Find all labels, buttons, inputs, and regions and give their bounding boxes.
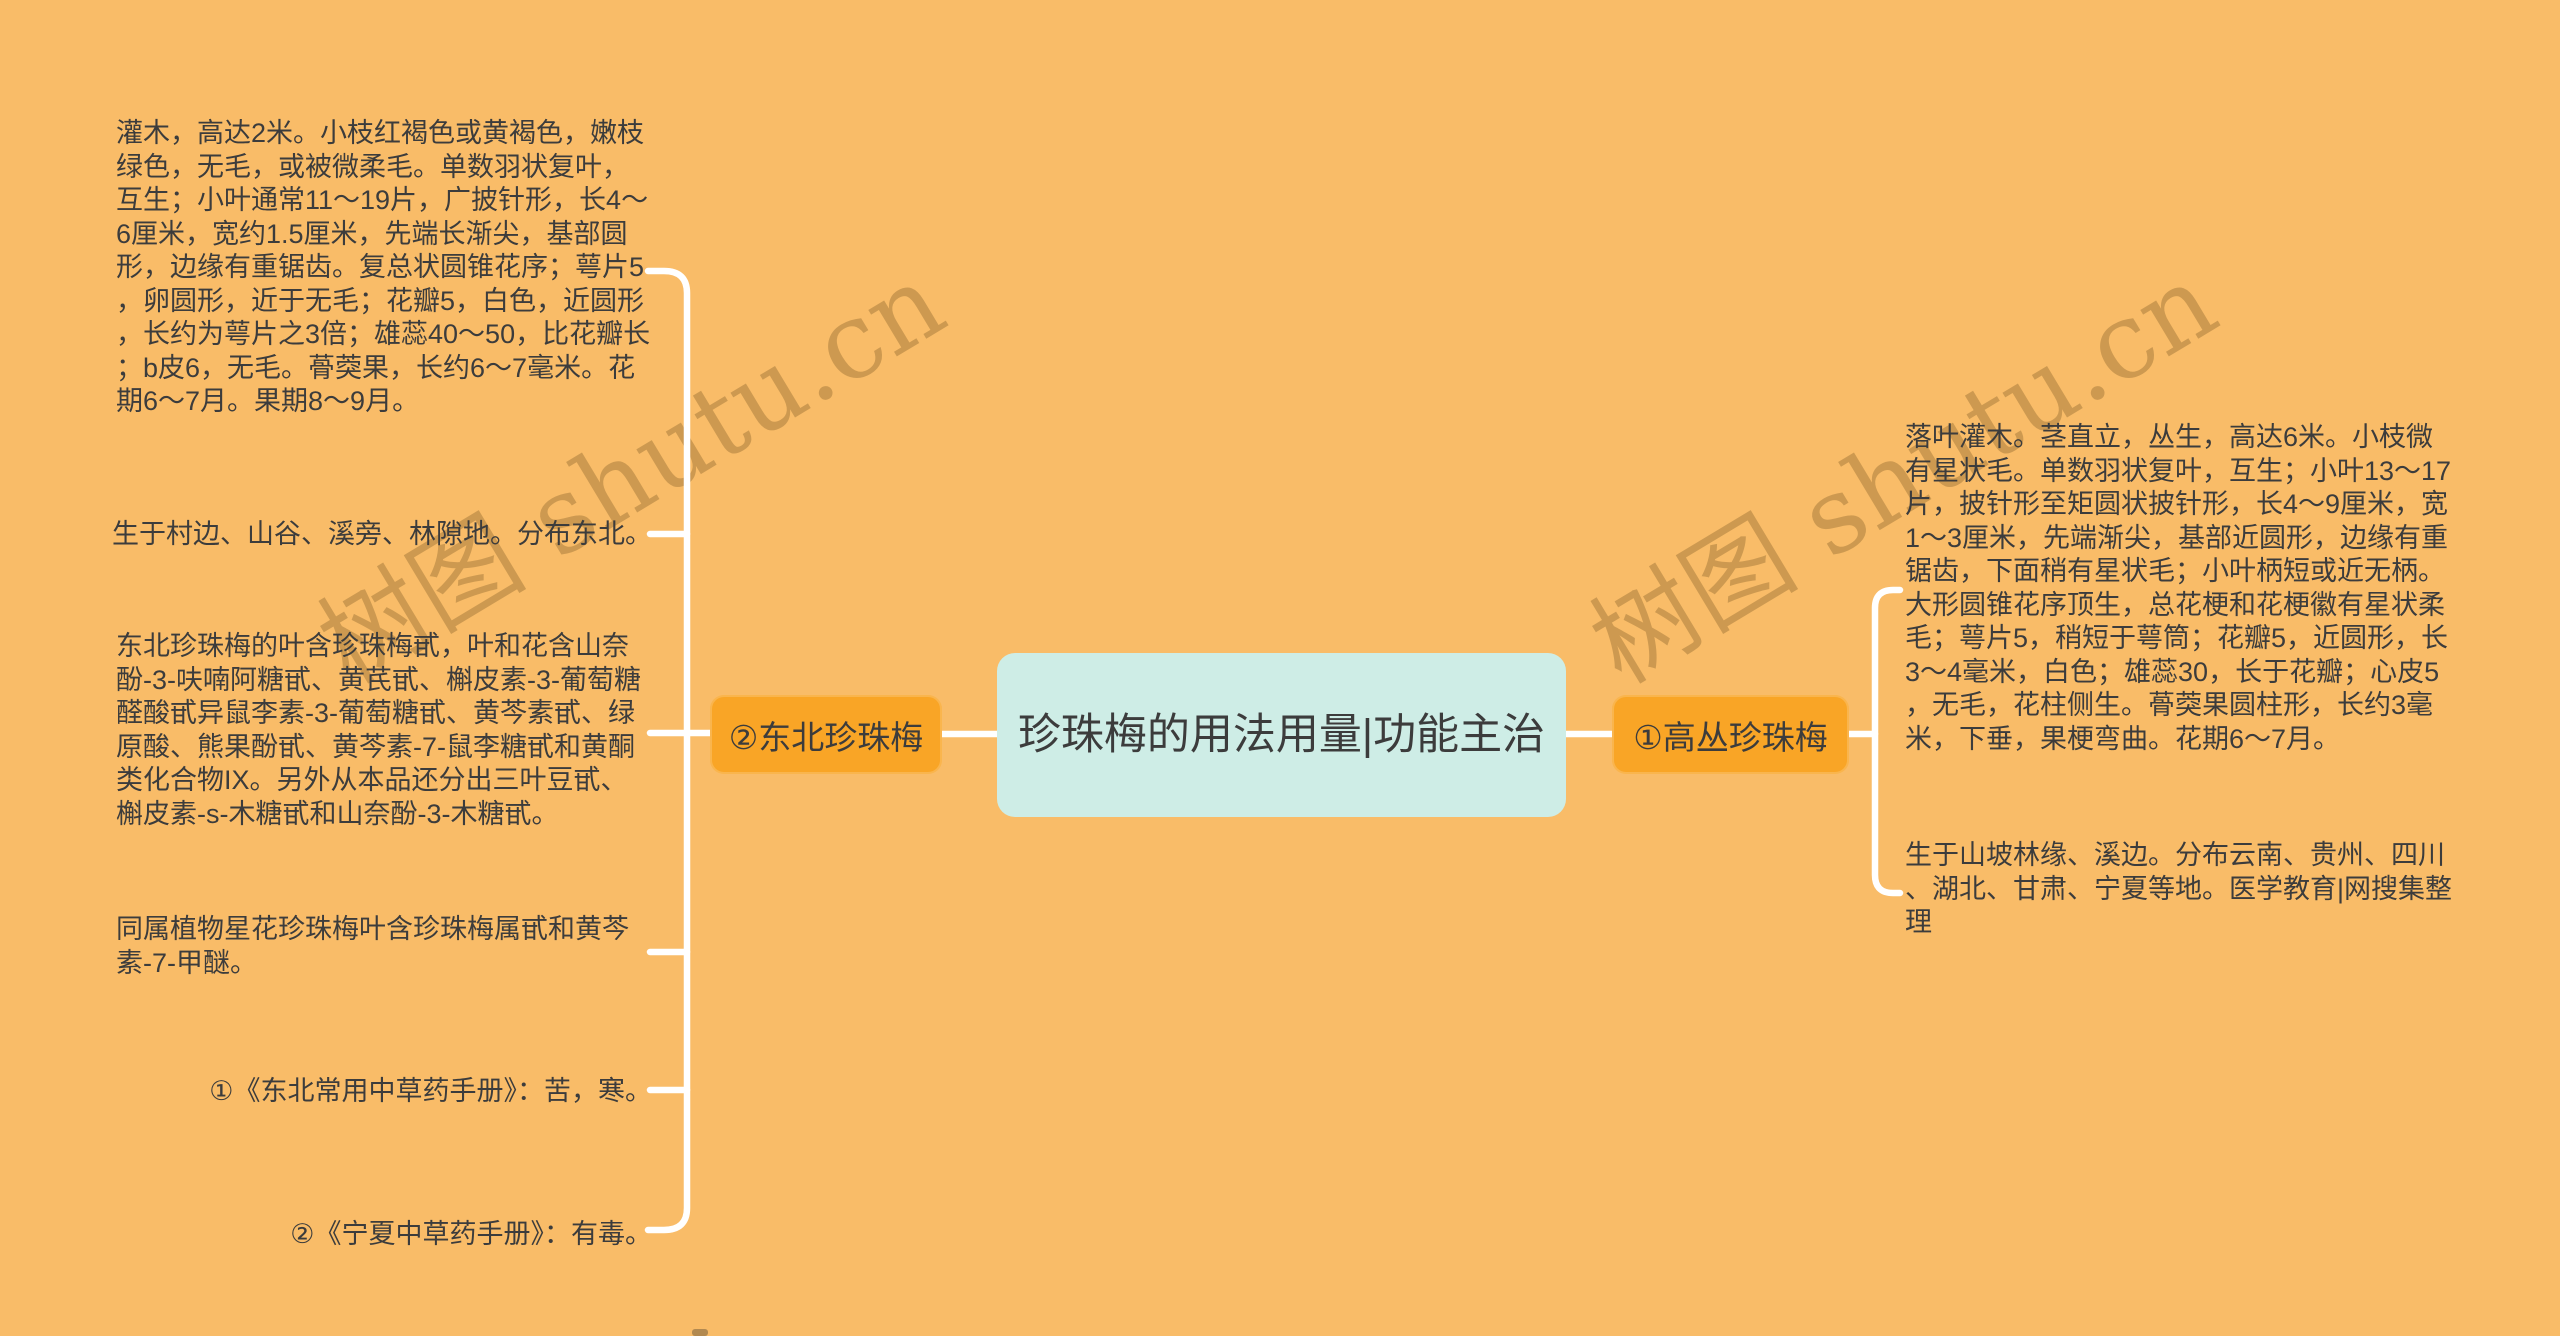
mindmap-canvas: 树图 shutu.cn 树图 shutu.cn 灌木，高达2米。小枝红褐色或黄褐… — [0, 0, 2560, 1336]
artifact-smudge — [692, 1329, 708, 1336]
note-related-species[interactable]: 同属植物星花珍珠梅叶含珍珠梅属甙和黄芩素-7-甲醚。 — [116, 913, 652, 980]
note-northeast-chemistry[interactable]: 东北珍珠梅的叶含珍珠梅甙，叶和花含山奈酚-3-呋喃阿糖甙、黄芪甙、槲皮素-3-葡… — [116, 630, 652, 831]
note-northeast-habitat[interactable]: 生于村边、山谷、溪旁、林隙地。分布东北。 — [112, 518, 652, 552]
right-bracket — [1875, 590, 1900, 893]
center-topic-title: 珍珠梅的用法用量|功能主治 — [1018, 707, 1545, 763]
note-handbook-2[interactable]: ②《宁夏中草药手册》：有毒。 — [290, 1218, 652, 1252]
branch-node-northeast[interactable]: ②东北珍珠梅 — [710, 695, 942, 774]
branch-node-northeast-label: ②东北珍珠梅 — [729, 711, 924, 759]
note-northeast-morphology[interactable]: 灌木，高达2米。小枝红褐色或黄褐色，嫩枝绿色，无毛，或被微柔毛。单数羽状复叶，互… — [116, 117, 652, 419]
note-handbook-1[interactable]: ①《东北常用中草药手册》：苦，寒。 — [209, 1075, 652, 1109]
branch-node-tall-cluster[interactable]: ①高丛珍珠梅 — [1612, 695, 1849, 774]
branch-node-tall-cluster-label: ①高丛珍珠梅 — [1633, 711, 1828, 759]
note-tall-morphology[interactable]: 落叶灌木。茎直立，丛生，高达6米。小枝微有星状毛。单数羽状复叶，互生；小叶13～… — [1905, 421, 2455, 756]
note-tall-habitat[interactable]: 生于山坡林缘、溪边。分布云南、贵州、四川、湖北、甘肃、宁夏等地。医学教育|网搜集… — [1905, 839, 2455, 940]
center-topic-node[interactable]: 珍珠梅的用法用量|功能主治 — [997, 653, 1566, 817]
left-bracket — [648, 271, 687, 1230]
